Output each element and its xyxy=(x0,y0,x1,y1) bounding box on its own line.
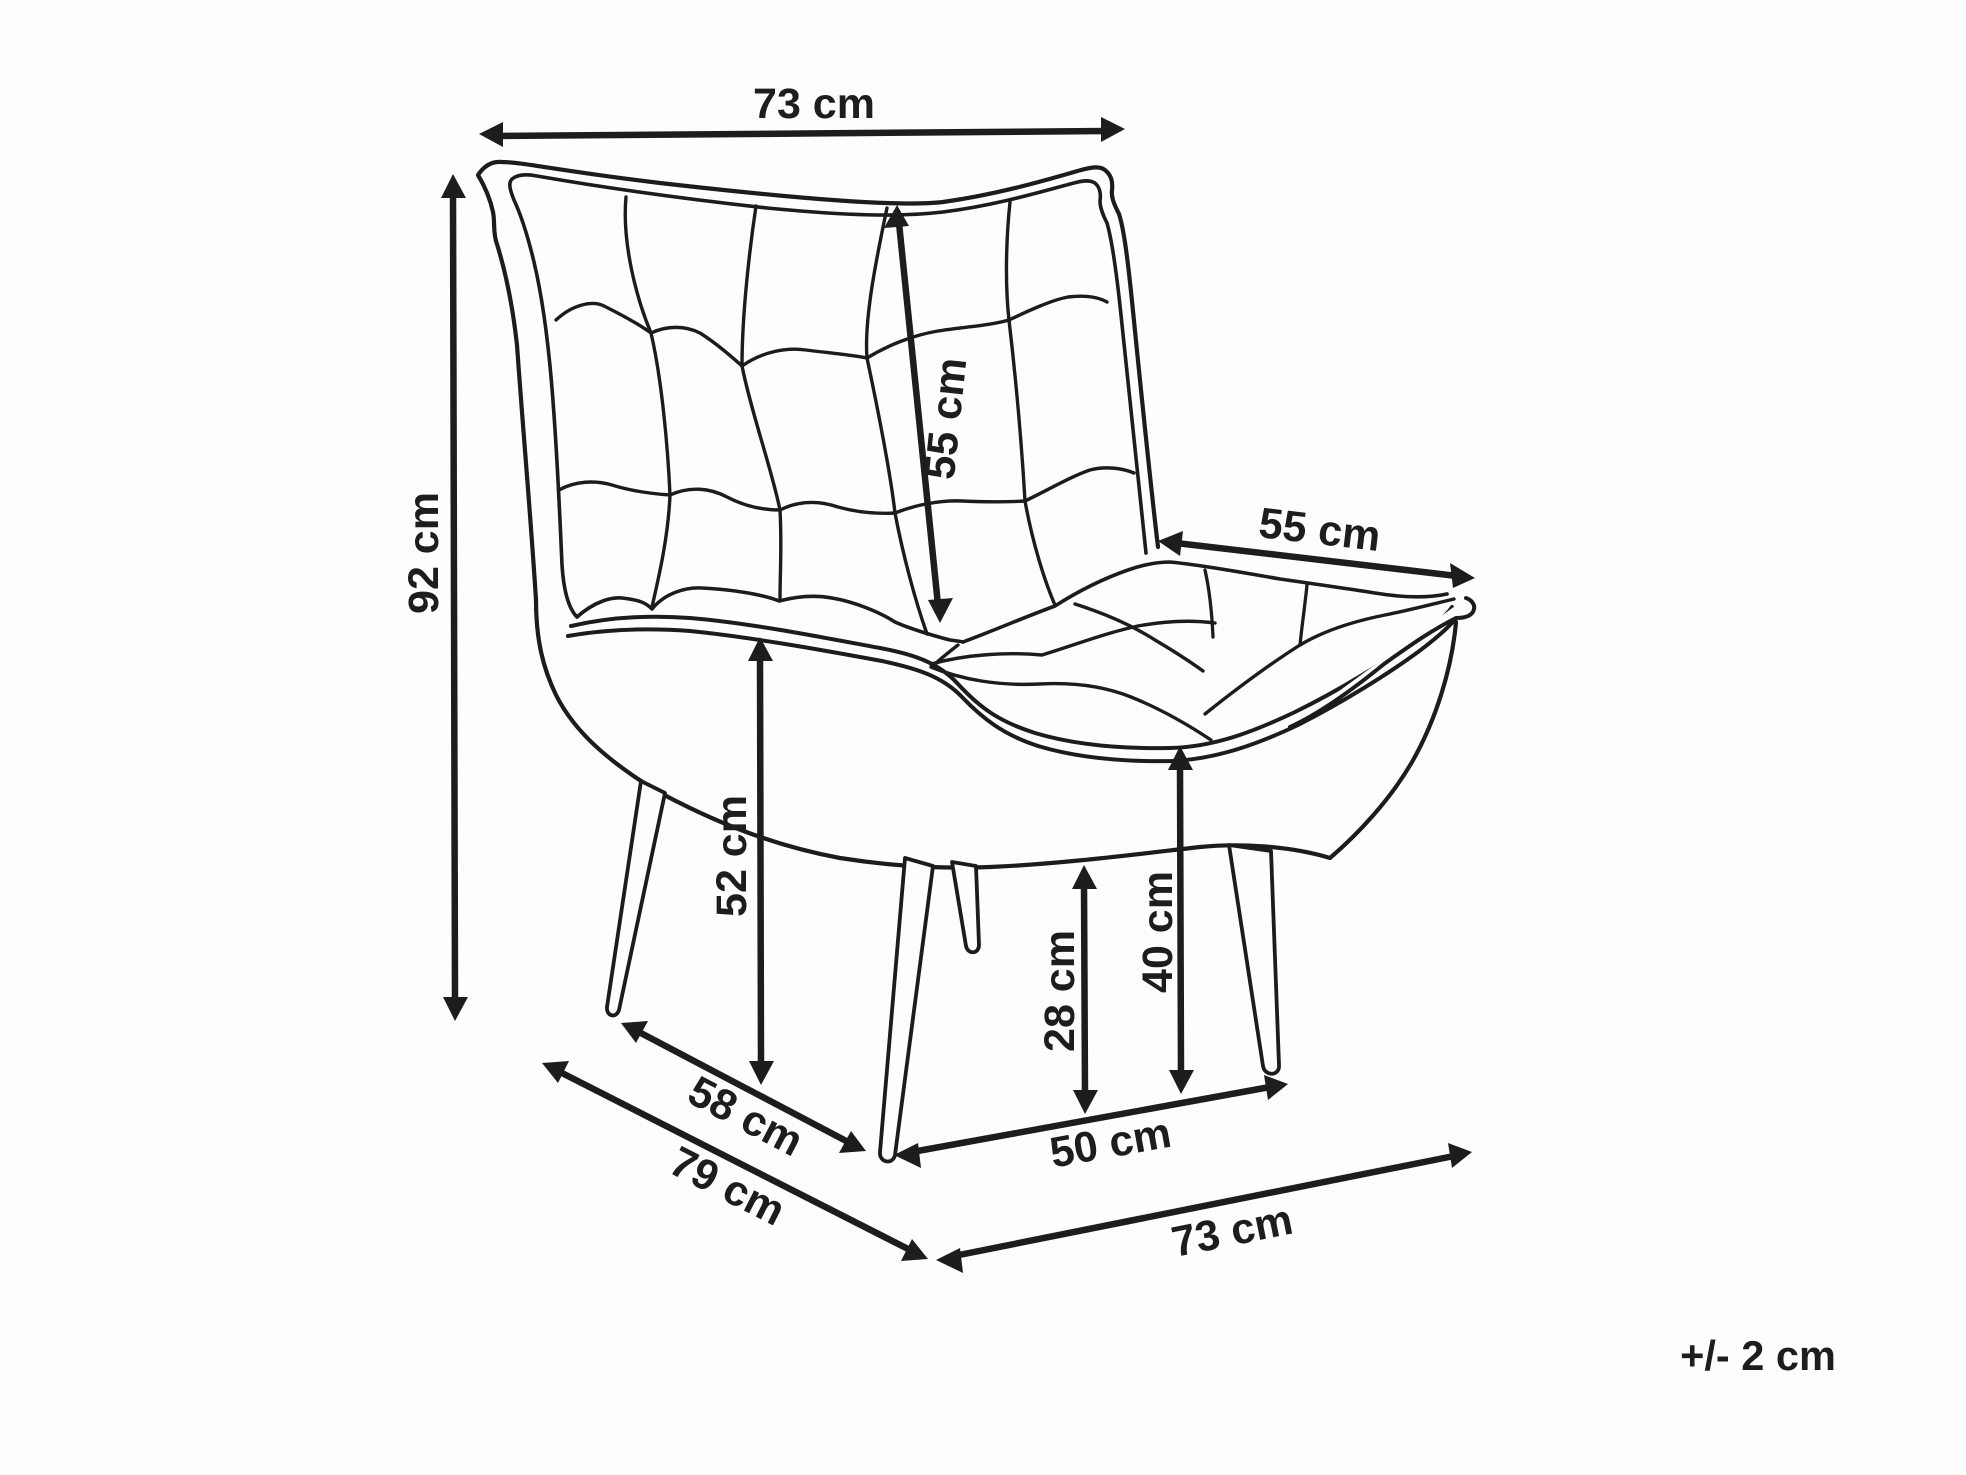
svg-text:28 cm: 28 cm xyxy=(1036,930,1084,1052)
svg-text:73 cm: 73 cm xyxy=(753,80,875,128)
svg-text:92 cm: 92 cm xyxy=(400,492,448,614)
svg-text:52 cm: 52 cm xyxy=(708,795,756,917)
svg-text:+/- 2 cm: +/- 2 cm xyxy=(1680,1332,1836,1379)
svg-text:40 cm: 40 cm xyxy=(1134,871,1182,993)
